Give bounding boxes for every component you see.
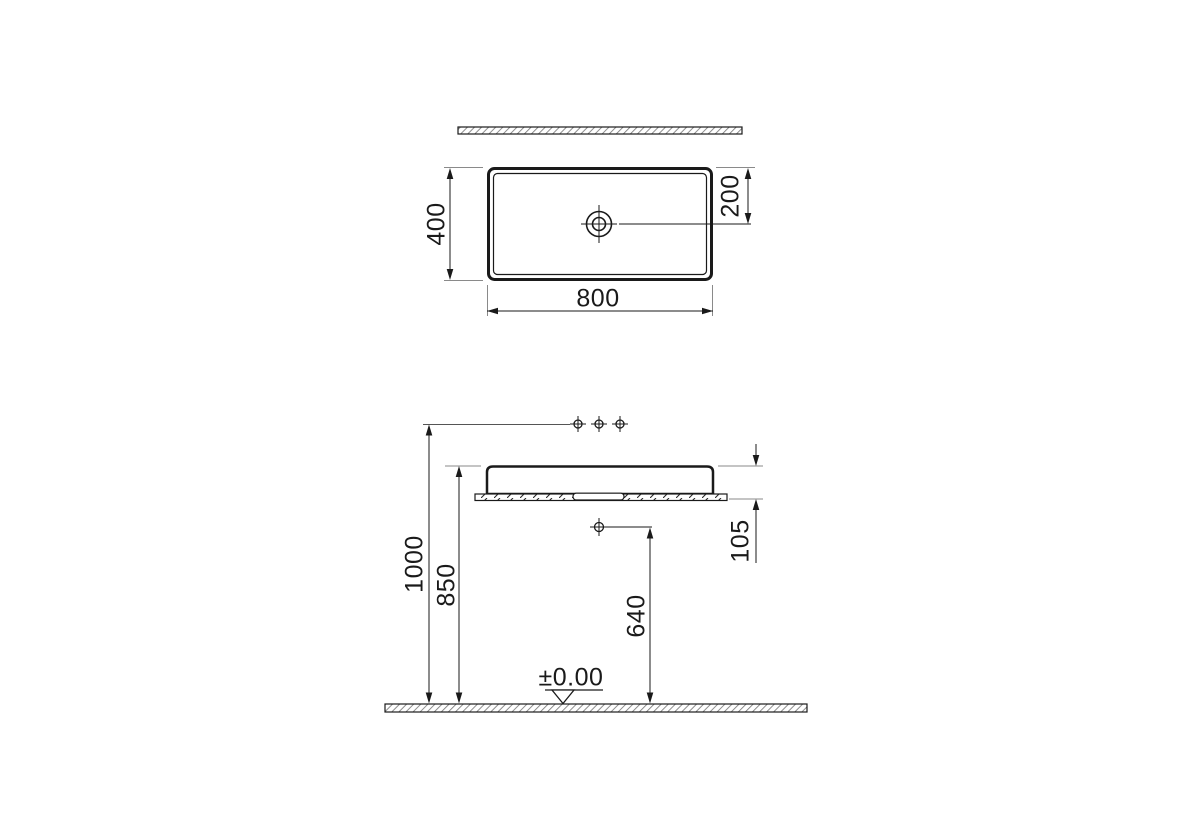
dim-label-drain-offset-200: 200: [719, 174, 744, 217]
level-marker-icon: [545, 690, 603, 704]
dim-label-basin-height-105: 105: [729, 519, 754, 562]
floor-section: [385, 704, 807, 712]
wall-section: [458, 127, 742, 134]
countertop-section: [475, 493, 727, 500]
basin-profile: [487, 467, 713, 495]
countertop-drain-slot: [573, 493, 624, 500]
faucet-holes-icon: [570, 416, 628, 432]
dim-label-faucet-height-1000: 1000: [403, 535, 428, 593]
dim-label-depth-400: 400: [425, 202, 450, 245]
floor-level-label: ±0.00: [539, 666, 604, 691]
drawing-linework: [0, 0, 1190, 840]
drain-outlet-icon: [590, 518, 608, 536]
dim-label-rim-height-850: 850: [435, 563, 460, 606]
dim-label-outlet-height-640: 640: [625, 594, 650, 637]
dim-label-width-800: 800: [576, 287, 619, 312]
technical-drawing-canvas: 400 200 800 1000 850 640 105 ±0.00: [0, 0, 1190, 840]
